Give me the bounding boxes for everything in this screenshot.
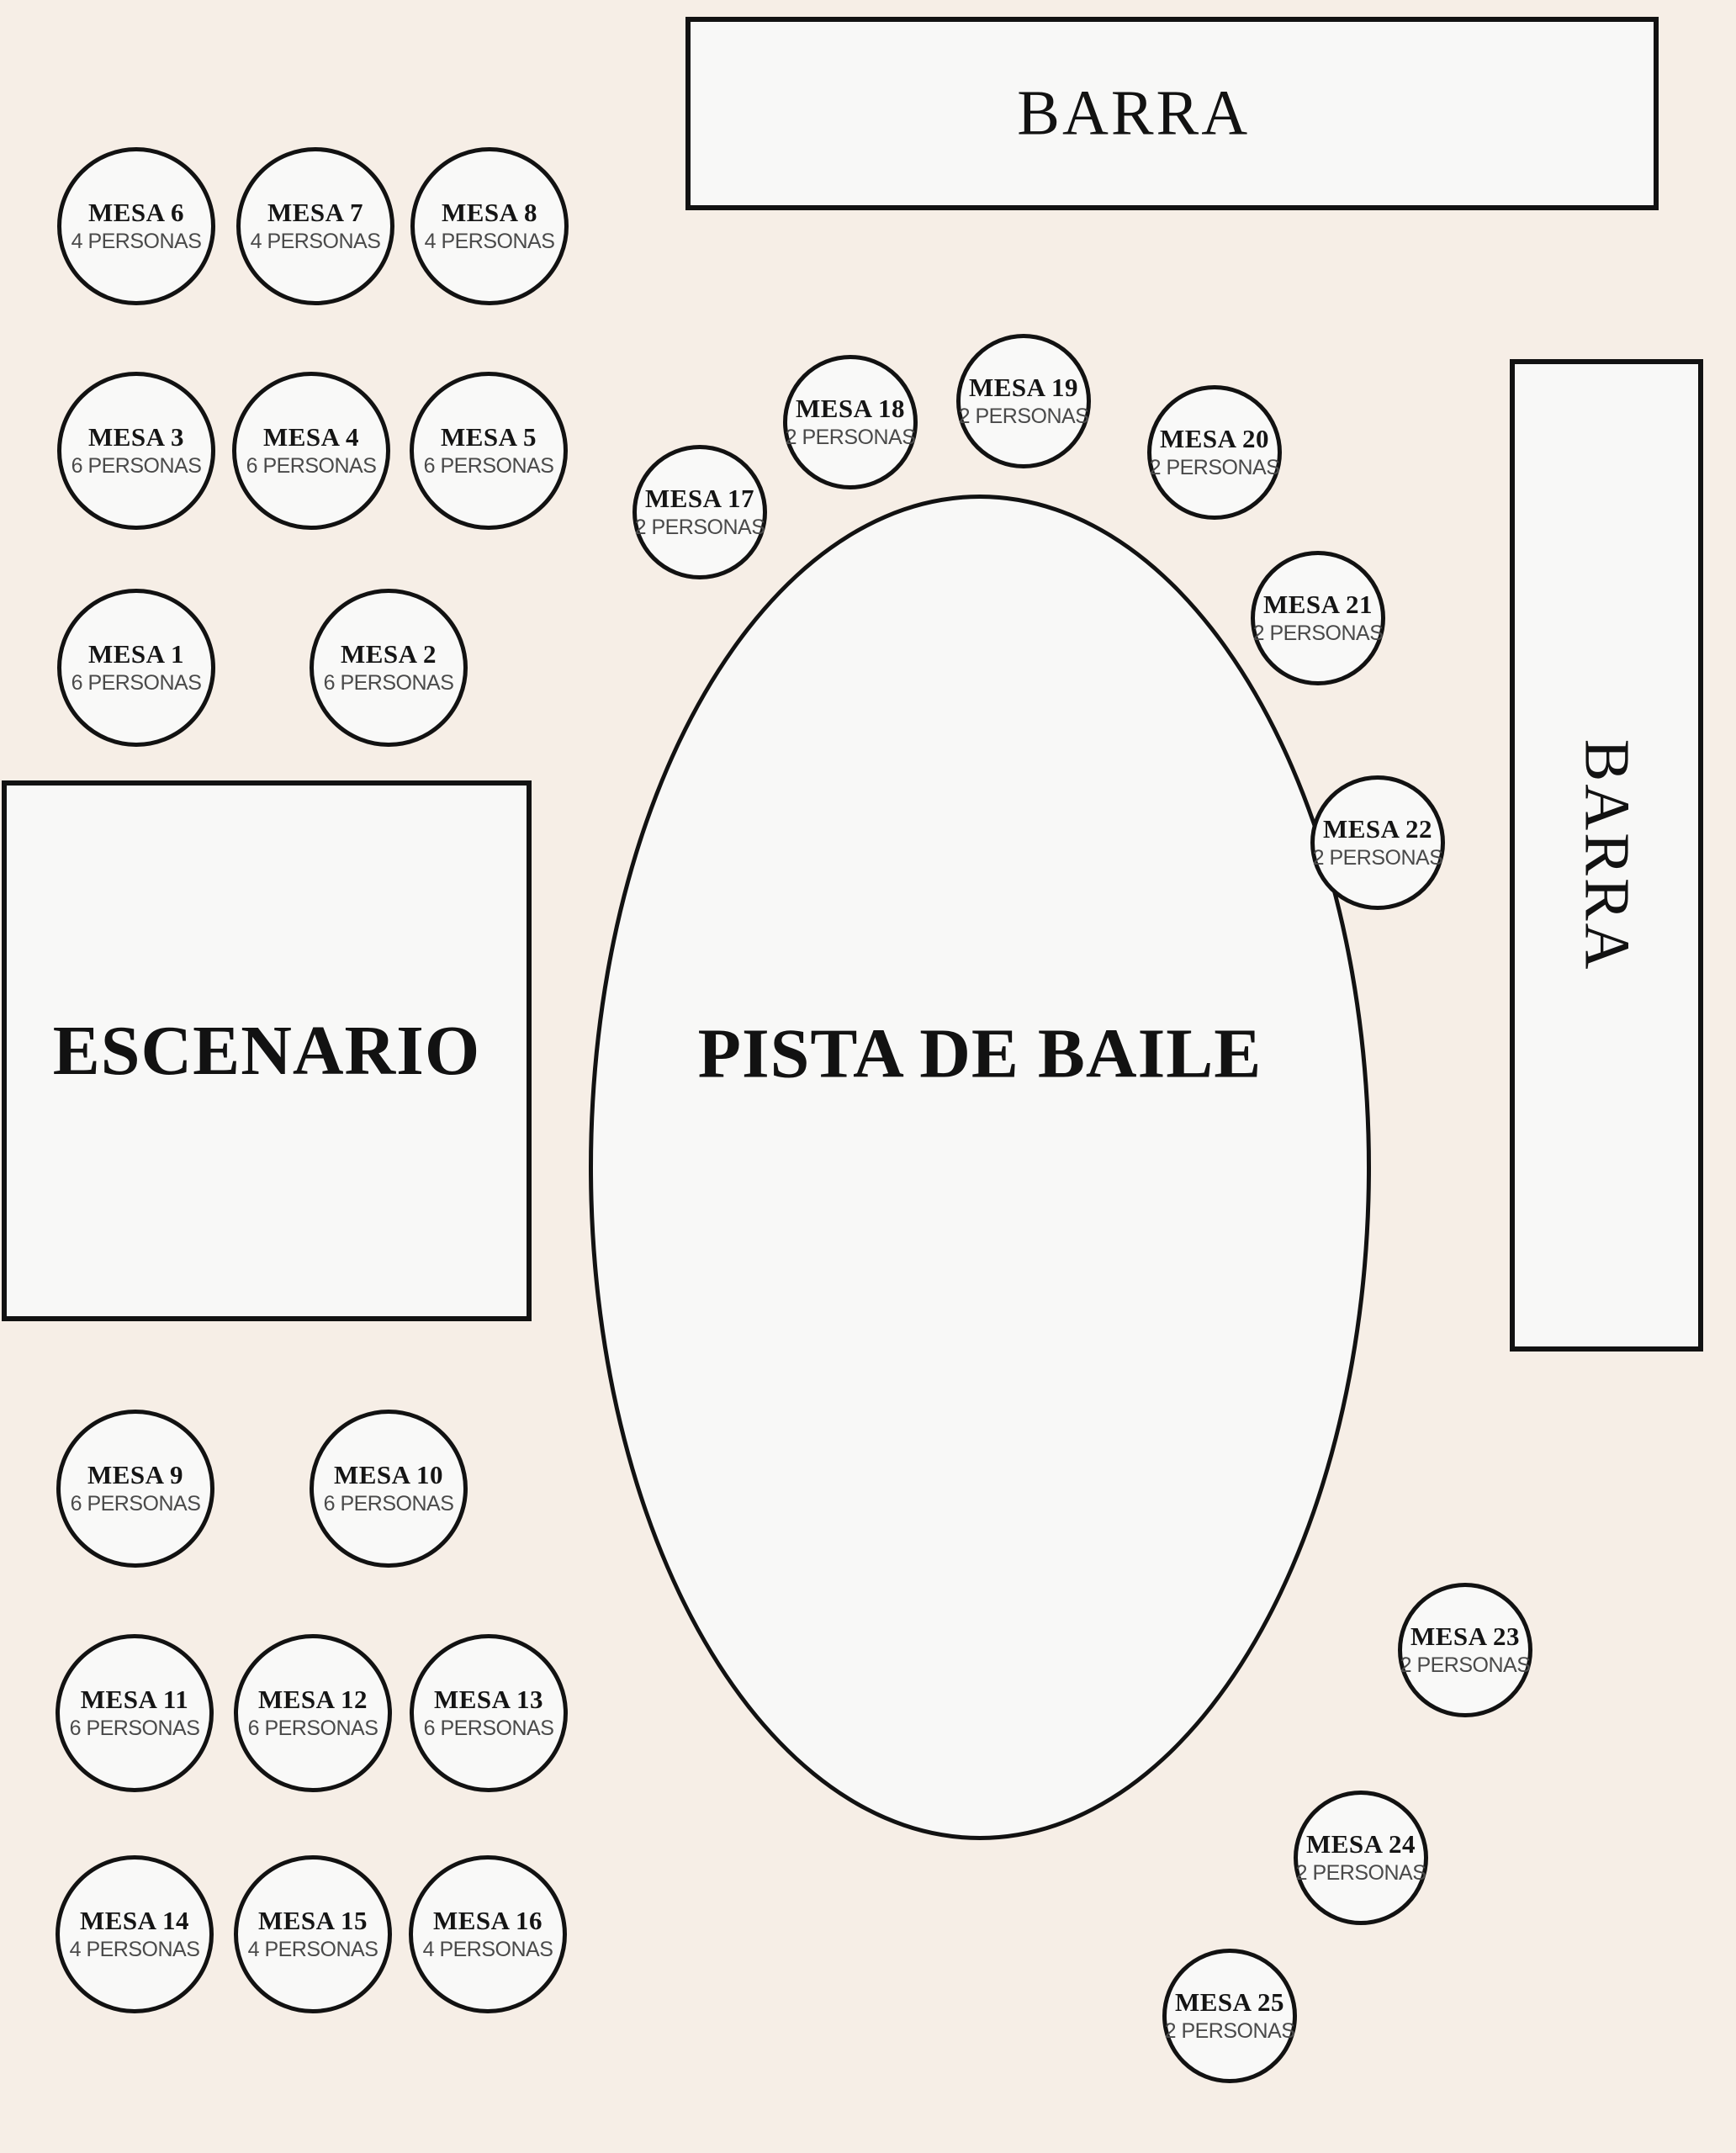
- table-name-label: MESA 13: [434, 1685, 543, 1714]
- bar-top-label: BARRA: [1017, 77, 1250, 151]
- stage-label: ESCENARIO: [53, 1010, 480, 1092]
- table-capacity-label: 6 PERSONAS: [246, 454, 377, 479]
- table-mesa-14: MESA 14 4 PERSONAS: [56, 1855, 214, 2013]
- table-mesa-7: MESA 7 4 PERSONAS: [236, 147, 394, 305]
- table-name-label: MESA 17: [645, 484, 754, 513]
- table-name-label: MESA 5: [441, 423, 537, 452]
- table-capacity-label: 4 PERSONAS: [70, 1938, 200, 1962]
- table-capacity-label: 2 PERSONAS: [1165, 2019, 1295, 2044]
- table-name-label: MESA 21: [1263, 590, 1373, 619]
- table-name-label: MESA 7: [267, 198, 363, 227]
- table-capacity-label: 6 PERSONAS: [71, 1492, 201, 1516]
- table-mesa-25: MESA 25 2 PERSONAS: [1162, 1949, 1297, 2083]
- table-mesa-17: MESA 17 2 PERSONAS: [632, 445, 767, 579]
- table-mesa-6: MESA 6 4 PERSONAS: [57, 147, 215, 305]
- table-name-label: MESA 1: [88, 640, 184, 669]
- table-mesa-22: MESA 22 2 PERSONAS: [1310, 775, 1445, 910]
- table-mesa-2: MESA 2 6 PERSONAS: [310, 589, 468, 747]
- table-name-label: MESA 3: [88, 423, 184, 452]
- table-name-label: MESA 10: [334, 1461, 443, 1489]
- table-capacity-label: 4 PERSONAS: [248, 1938, 378, 1962]
- table-name-label: MESA 20: [1160, 425, 1269, 453]
- table-capacity-label: 6 PERSONAS: [324, 671, 454, 696]
- dance-floor-label: PISTA DE BAILE: [698, 1013, 1262, 1095]
- table-name-label: MESA 24: [1306, 1830, 1416, 1859]
- table-mesa-16: MESA 16 4 PERSONAS: [409, 1855, 567, 2013]
- table-mesa-8: MESA 8 4 PERSONAS: [410, 147, 569, 305]
- table-capacity-label: 6 PERSONAS: [71, 454, 202, 479]
- table-mesa-5: MESA 5 6 PERSONAS: [410, 372, 568, 530]
- table-name-label: MESA 22: [1323, 815, 1432, 844]
- table-capacity-label: 4 PERSONAS: [425, 230, 555, 254]
- table-capacity-label: 2 PERSONAS: [1313, 846, 1443, 870]
- table-name-label: MESA 2: [341, 640, 437, 669]
- table-capacity-label: 6 PERSONAS: [70, 1717, 200, 1741]
- table-mesa-19: MESA 19 2 PERSONAS: [956, 334, 1091, 468]
- table-name-label: MESA 8: [442, 198, 537, 227]
- table-capacity-label: 6 PERSONAS: [424, 1717, 554, 1741]
- table-capacity-label: 2 PERSONAS: [1296, 1861, 1426, 1886]
- table-name-label: MESA 12: [258, 1685, 368, 1714]
- table-capacity-label: 2 PERSONAS: [786, 426, 916, 450]
- table-mesa-18: MESA 18 2 PERSONAS: [783, 355, 918, 489]
- table-name-label: MESA 15: [258, 1907, 368, 1935]
- table-name-label: MESA 14: [80, 1907, 189, 1935]
- table-capacity-label: 2 PERSONAS: [1253, 622, 1384, 646]
- table-capacity-label: 4 PERSONAS: [71, 230, 202, 254]
- table-name-label: MESA 16: [433, 1907, 542, 1935]
- table-mesa-10: MESA 10 6 PERSONAS: [310, 1410, 468, 1568]
- table-capacity-label: 4 PERSONAS: [251, 230, 381, 254]
- table-capacity-label: 2 PERSONAS: [1150, 456, 1280, 480]
- table-name-label: MESA 25: [1175, 1988, 1284, 2017]
- table-name-label: MESA 19: [969, 373, 1078, 402]
- table-capacity-label: 2 PERSONAS: [1400, 1653, 1531, 1678]
- table-mesa-4: MESA 4 6 PERSONAS: [232, 372, 390, 530]
- table-capacity-label: 6 PERSONAS: [248, 1717, 378, 1741]
- floor-plan: BARRA BARRA ESCENARIO PISTA DE BAILE MES…: [0, 0, 1736, 2153]
- table-mesa-3: MESA 3 6 PERSONAS: [57, 372, 215, 530]
- table-capacity-label: 2 PERSONAS: [959, 405, 1089, 429]
- table-name-label: MESA 23: [1410, 1622, 1520, 1651]
- table-mesa-15: MESA 15 4 PERSONAS: [234, 1855, 392, 2013]
- stage-area: ESCENARIO: [2, 780, 532, 1321]
- table-name-label: MESA 4: [263, 423, 359, 452]
- bar-top-area: BARRA: [685, 17, 1659, 210]
- table-name-label: MESA 9: [87, 1461, 183, 1489]
- table-capacity-label: 6 PERSONAS: [324, 1492, 454, 1516]
- table-mesa-24: MESA 24 2 PERSONAS: [1294, 1791, 1428, 1925]
- table-name-label: MESA 18: [796, 394, 905, 423]
- table-mesa-12: MESA 12 6 PERSONAS: [234, 1634, 392, 1792]
- table-capacity-label: 6 PERSONAS: [424, 454, 554, 479]
- table-mesa-11: MESA 11 6 PERSONAS: [56, 1634, 214, 1792]
- bar-right-area: BARRA: [1510, 359, 1703, 1352]
- bar-right-label: BARRA: [1570, 739, 1643, 972]
- dance-floor-area: PISTA DE BAILE: [589, 495, 1371, 1840]
- table-capacity-label: 6 PERSONAS: [71, 671, 202, 696]
- table-name-label: MESA 6: [88, 198, 184, 227]
- table-mesa-21: MESA 21 2 PERSONAS: [1251, 551, 1385, 685]
- table-mesa-13: MESA 13 6 PERSONAS: [410, 1634, 568, 1792]
- table-mesa-9: MESA 9 6 PERSONAS: [56, 1410, 214, 1568]
- table-mesa-1: MESA 1 6 PERSONAS: [57, 589, 215, 747]
- table-capacity-label: 2 PERSONAS: [635, 516, 765, 540]
- table-capacity-label: 4 PERSONAS: [423, 1938, 553, 1962]
- table-mesa-20: MESA 20 2 PERSONAS: [1147, 385, 1282, 520]
- table-mesa-23: MESA 23 2 PERSONAS: [1398, 1583, 1532, 1717]
- table-name-label: MESA 11: [81, 1685, 188, 1714]
